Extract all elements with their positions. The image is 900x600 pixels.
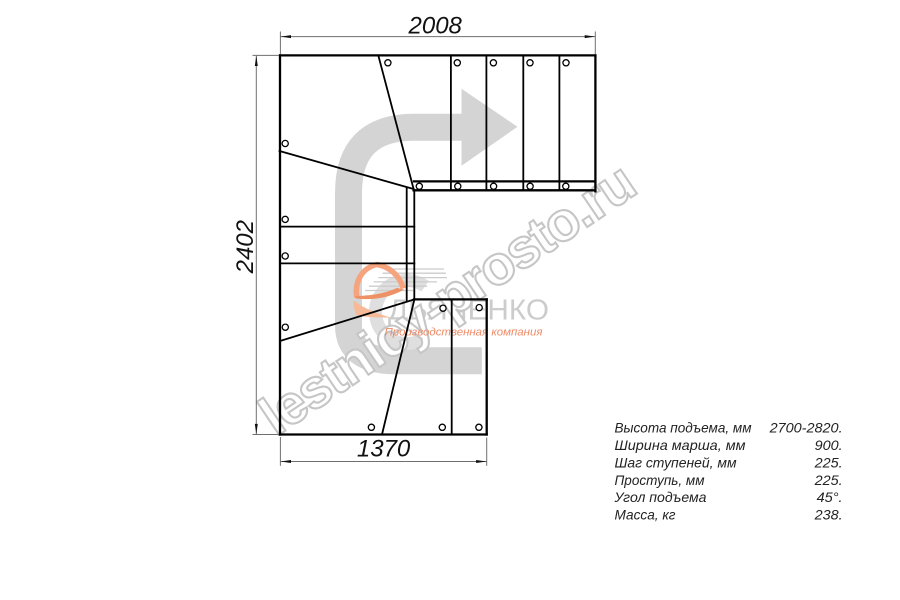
svg-text:238.: 238. [814,507,843,523]
svg-text:2008: 2008 [408,12,463,39]
svg-text:Шаг ступеней, мм: Шаг ступеней, мм [615,454,737,470]
svg-text:900.: 900. [815,437,843,453]
svg-text:Масса, кг: Масса, кг [615,507,676,523]
svg-text:1370: 1370 [357,436,411,463]
svg-text:Высота подъема, мм: Высота подъема, мм [615,419,752,435]
svg-text:2700-2820.: 2700-2820. [769,419,843,435]
svg-text:2402: 2402 [232,220,259,274]
svg-text:Проступь, мм: Проступь, мм [615,472,705,488]
svg-text:225.: 225. [814,454,843,470]
svg-text:225.: 225. [814,472,843,488]
svg-text:Угол подъема: Угол подъема [613,489,706,505]
svg-text:45°.: 45°. [817,489,843,505]
svg-text:Ширина марша, мм: Ширина марша, мм [615,437,746,453]
